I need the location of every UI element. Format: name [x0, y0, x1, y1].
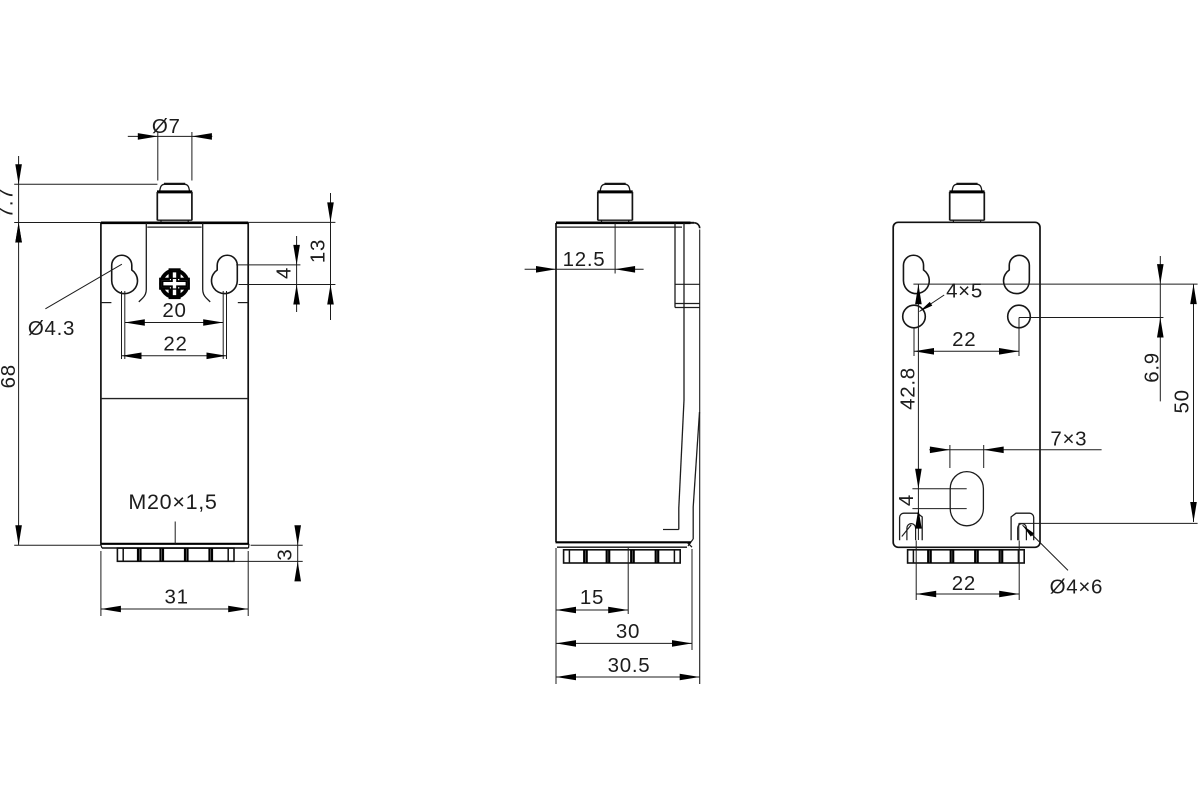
svg-text:7×3: 7×3 — [1050, 428, 1087, 451]
svg-text:22: 22 — [952, 328, 976, 351]
svg-text:22: 22 — [952, 572, 976, 595]
svg-text:20: 20 — [162, 299, 186, 322]
svg-text:31: 31 — [164, 586, 188, 609]
svg-text:M20×1,5: M20×1,5 — [128, 490, 217, 514]
svg-text:22: 22 — [163, 333, 187, 356]
svg-text:42.8: 42.8 — [897, 367, 920, 410]
svg-text:15: 15 — [580, 586, 604, 609]
svg-text:6.9: 6.9 — [1140, 352, 1163, 383]
svg-text:Ø4.3: Ø4.3 — [28, 317, 75, 340]
svg-text:Ø4×6: Ø4×6 — [1050, 576, 1104, 599]
svg-text:30: 30 — [616, 620, 640, 643]
svg-text:68: 68 — [0, 364, 20, 388]
svg-text:3: 3 — [274, 548, 297, 560]
svg-text:13: 13 — [306, 239, 329, 263]
svg-text:4×5: 4×5 — [946, 280, 983, 303]
svg-text:30.5: 30.5 — [608, 654, 651, 677]
svg-text:12.5: 12.5 — [563, 248, 606, 271]
svg-text:4: 4 — [272, 267, 295, 279]
svg-text:7.7: 7.7 — [0, 188, 18, 219]
svg-text:4: 4 — [895, 494, 918, 506]
svg-text:50: 50 — [1171, 389, 1194, 413]
svg-text:Ø7: Ø7 — [152, 115, 181, 138]
